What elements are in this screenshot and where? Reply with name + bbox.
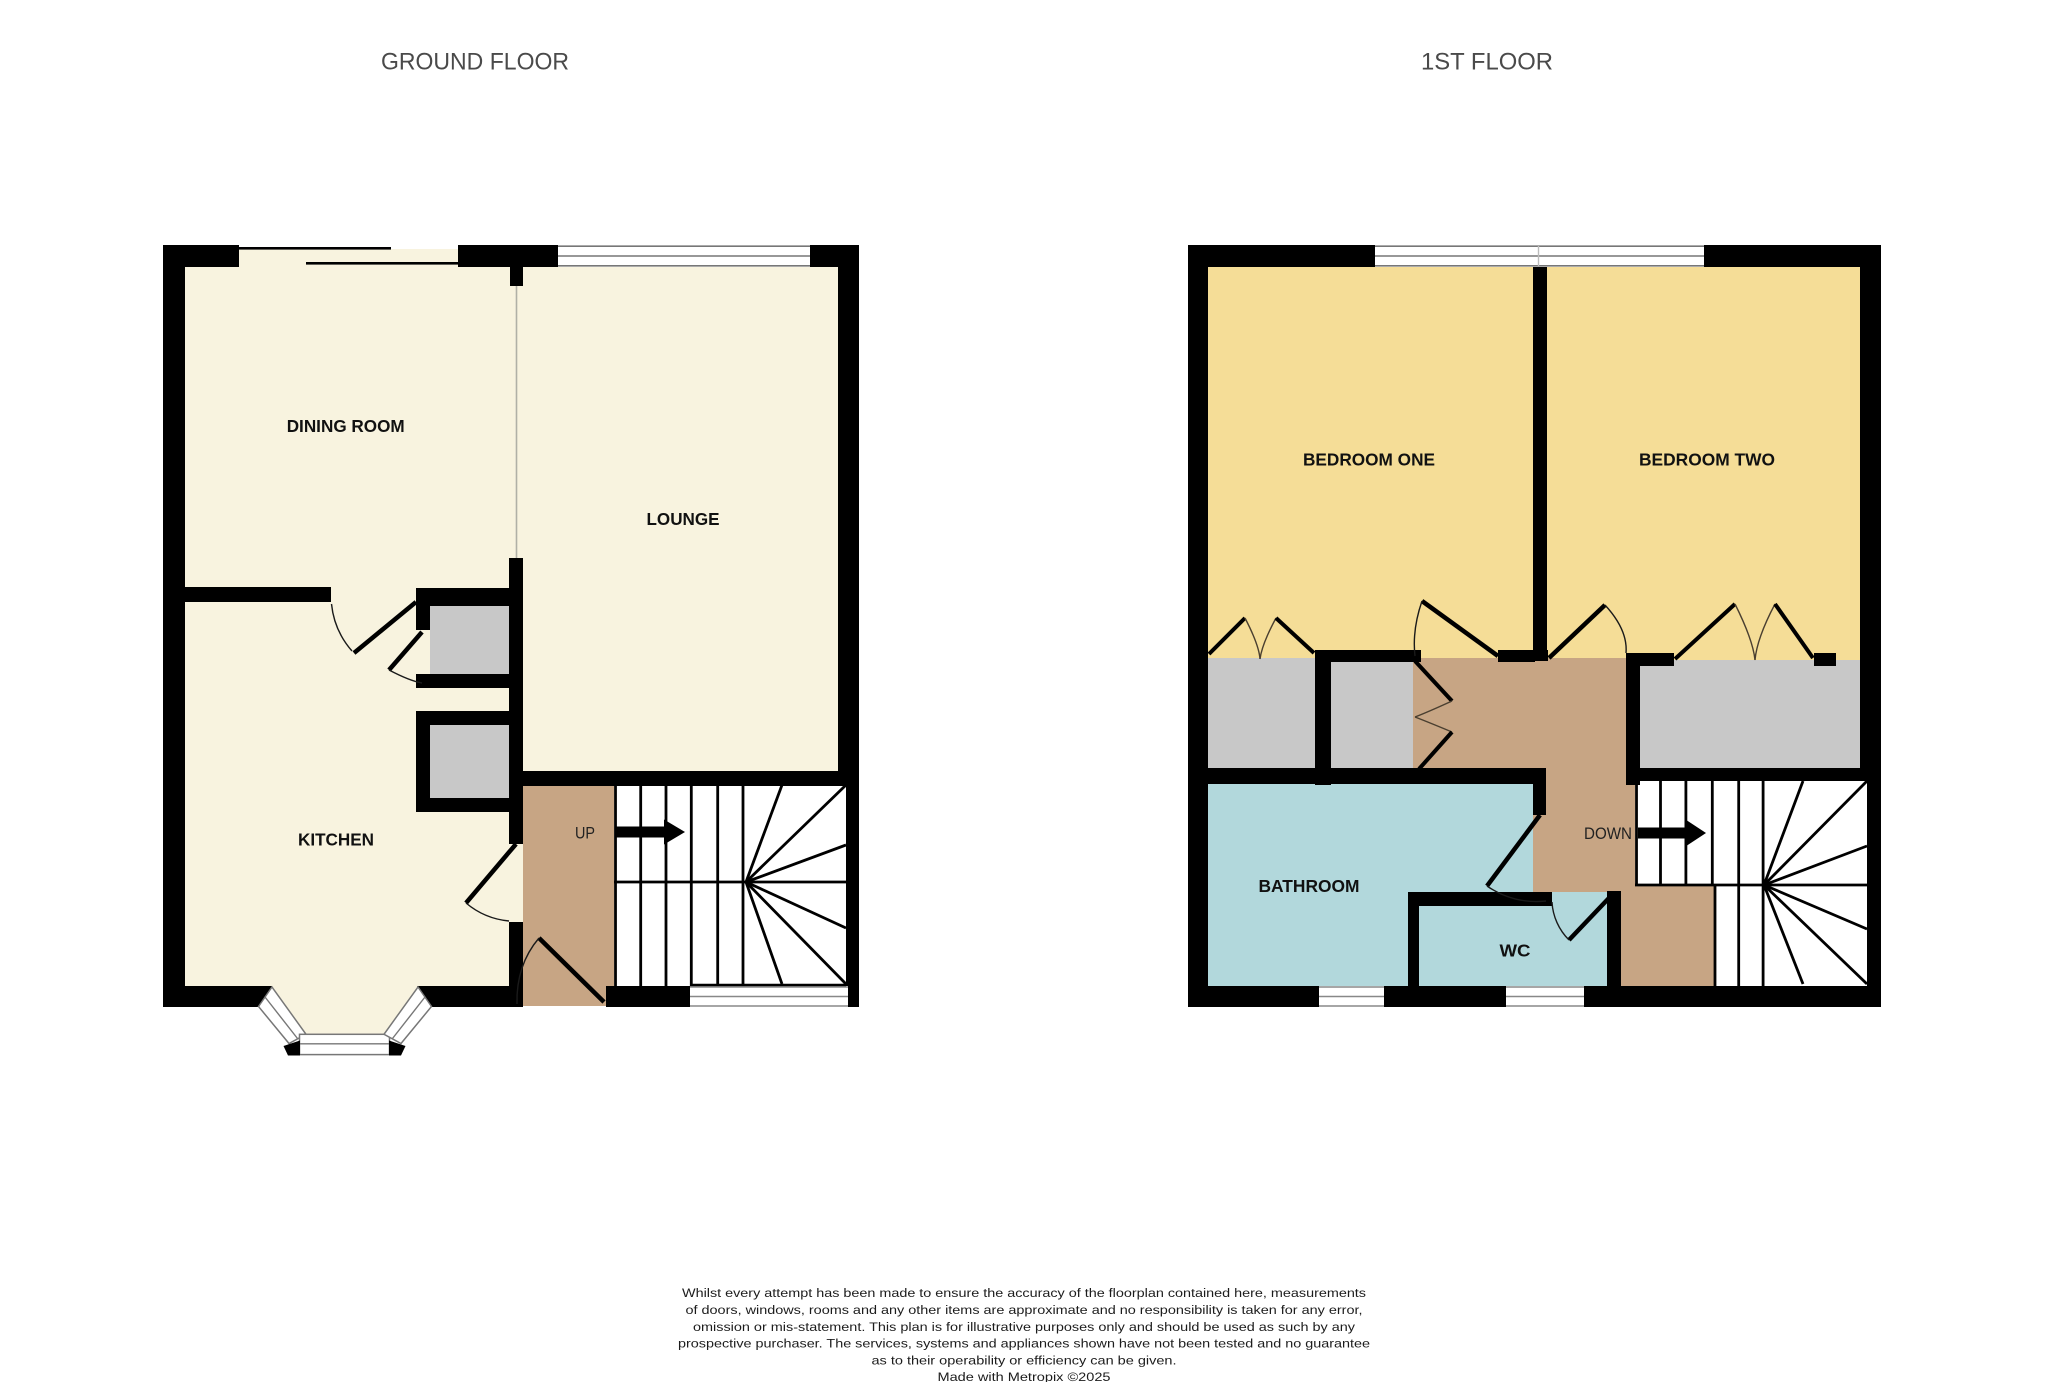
svg-text:DINING ROOM: DINING ROOM (287, 416, 405, 436)
svg-text:DOWN: DOWN (1584, 825, 1632, 843)
svg-text:Whilst every attempt has been: Whilst every attempt has been made to en… (682, 1286, 1366, 1300)
svg-text:BEDROOM ONE: BEDROOM ONE (1303, 450, 1435, 470)
svg-text:UP: UP (575, 825, 595, 843)
svg-text:BATHROOM: BATHROOM (1259, 876, 1360, 896)
svg-text:1ST FLOOR: 1ST FLOOR (1421, 49, 1553, 76)
svg-text:LOUNGE: LOUNGE (647, 509, 720, 529)
svg-text:omission or mis-statement. Thi: omission or mis-statement. This plan is … (693, 1320, 1356, 1334)
svg-text:KITCHEN: KITCHEN (298, 830, 374, 850)
svg-text:Made with Metropix ©2025: Made with Metropix ©2025 (938, 1370, 1111, 1382)
svg-text:WC: WC (1500, 941, 1531, 961)
svg-text:of doors, windows, rooms and a: of doors, windows, rooms and any other i… (686, 1303, 1363, 1317)
svg-text:as to their operability or eff: as to their operability or efficiency ca… (872, 1354, 1177, 1368)
svg-text:prospective purchaser. The ser: prospective purchaser. The services, sys… (678, 1337, 1370, 1351)
svg-text:BEDROOM TWO: BEDROOM TWO (1639, 450, 1775, 470)
svg-text:GROUND FLOOR: GROUND FLOOR (381, 49, 569, 76)
